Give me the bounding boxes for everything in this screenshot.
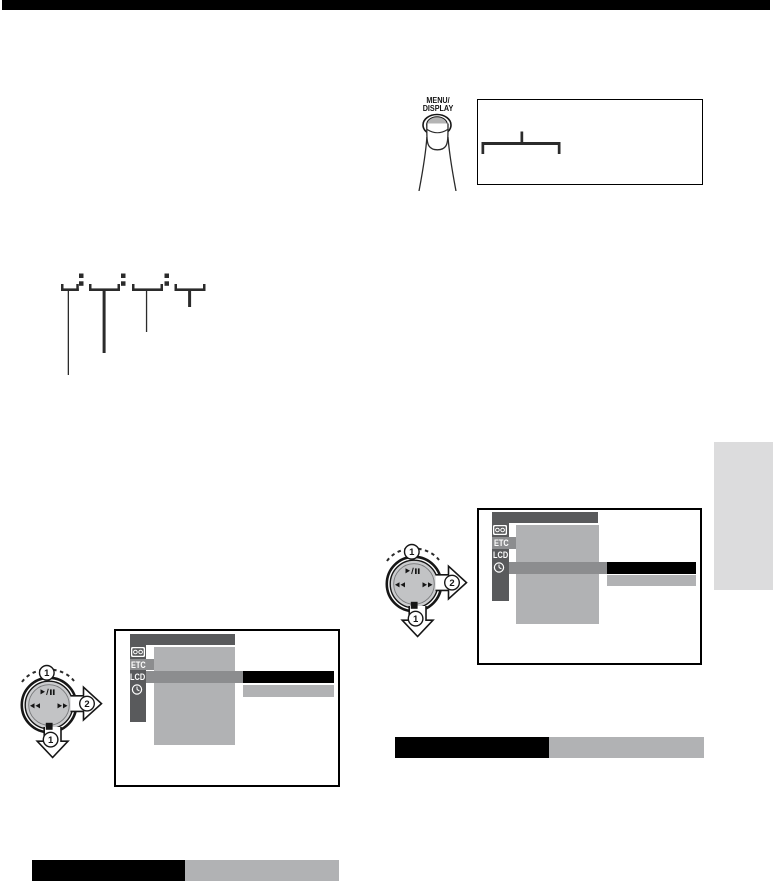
jog-dial-diagram-right: 1 2 1 xyxy=(378,541,470,639)
callout-line-4 xyxy=(188,291,191,307)
etc-label: ETC xyxy=(131,660,146,670)
page-edge-tab xyxy=(714,442,773,590)
finger-right-edge xyxy=(448,137,456,191)
menu-screen-left: ETC LCD xyxy=(114,629,340,787)
menu-item-etc[interactable]: ETC xyxy=(492,537,516,549)
section-title-bar-gray-left xyxy=(185,860,339,881)
digit-bracket-2 xyxy=(89,284,120,291)
colon-dots-3 xyxy=(165,274,170,286)
display-indicator-bracket xyxy=(478,100,702,184)
menu-content-placeholder xyxy=(516,525,599,624)
menu-title-bar xyxy=(492,512,598,523)
menu-display-button-label: MENU/ DISPLAY xyxy=(412,97,464,112)
timecode-bracket-diagram xyxy=(58,270,208,378)
step-2-number: 2 xyxy=(84,699,89,710)
jog-dial-diagram-left: 1 2 1 xyxy=(13,662,105,760)
page-top-rule xyxy=(2,0,770,10)
selected-menu-row-extension[interactable] xyxy=(154,671,243,684)
etc-label: ETC xyxy=(494,538,509,548)
option-unselected-bar[interactable] xyxy=(243,685,334,697)
colon-dots-1 xyxy=(79,274,84,286)
step-1-number: 1 xyxy=(409,547,415,558)
option-selected-bar[interactable] xyxy=(243,671,334,684)
cassette-icon[interactable] xyxy=(131,647,145,657)
callout-line-1 xyxy=(68,291,69,375)
menu-title-bar xyxy=(130,634,236,645)
colon-dots-2 xyxy=(121,274,126,286)
menu-content-placeholder xyxy=(154,647,236,746)
step-1-number: 1 xyxy=(413,614,419,625)
display-screen-box xyxy=(477,99,703,185)
clock-icon[interactable] xyxy=(493,562,505,573)
digit-bracket-1 xyxy=(61,284,79,291)
callout-line-2 xyxy=(103,291,106,353)
section-title-bar-black-right xyxy=(395,737,549,758)
option-unselected-bar[interactable] xyxy=(607,575,696,586)
manual-page: MENU/ DISPLAY xyxy=(0,0,773,881)
digit-bracket-3 xyxy=(132,284,163,291)
clock-icon[interactable] xyxy=(131,684,143,695)
active-category-highlight xyxy=(509,524,516,537)
menu-item-lcd[interactable]: LCD xyxy=(130,672,145,682)
stop-notch xyxy=(411,602,418,609)
menu-item-etc[interactable]: ETC xyxy=(130,659,154,670)
finger-left-edge xyxy=(419,137,427,191)
step-2-number: 2 xyxy=(449,578,454,589)
option-selected-bar[interactable] xyxy=(607,562,696,574)
section-title-bar-black-left xyxy=(32,860,186,881)
menu-button-label-line2: DISPLAY xyxy=(412,105,464,113)
active-category-highlight xyxy=(146,646,153,659)
cassette-icon[interactable] xyxy=(493,525,507,535)
menu-screen-right: ETC LCD xyxy=(477,508,702,665)
section-title-bar-gray-right xyxy=(549,737,704,758)
fingertip xyxy=(427,124,448,150)
step-1-number: 1 xyxy=(48,735,54,746)
callout-line-3 xyxy=(146,291,147,332)
step-1-number: 1 xyxy=(44,668,50,679)
selected-menu-row-extension[interactable] xyxy=(516,562,607,574)
stop-notch xyxy=(46,723,53,730)
menu-item-lcd[interactable]: LCD xyxy=(493,550,508,560)
finger-press-icon xyxy=(412,113,460,191)
digit-bracket-4 xyxy=(175,284,206,291)
